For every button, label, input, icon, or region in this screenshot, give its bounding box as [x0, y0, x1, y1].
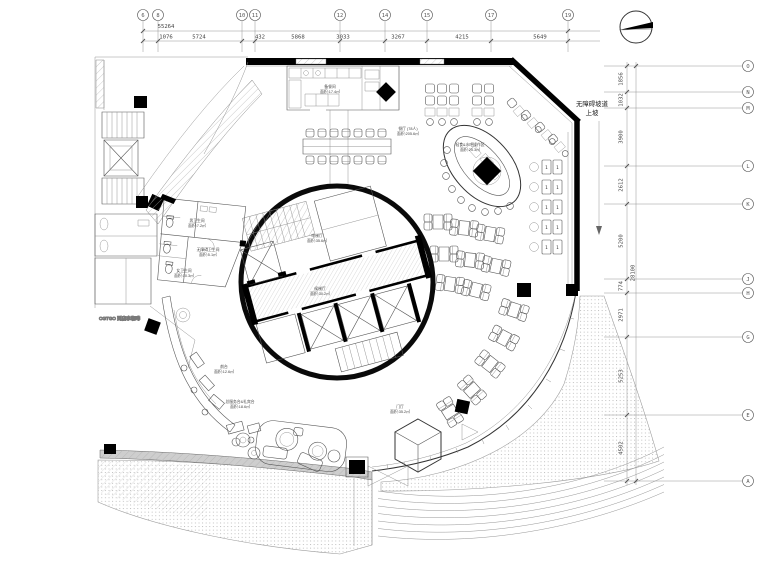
room-area: 面积:35.6㎡	[307, 238, 327, 243]
door-opening	[310, 108, 326, 112]
seat-number: 1	[545, 225, 548, 231]
dim-value: 2612	[619, 178, 625, 191]
grid-bubble: 17	[488, 13, 495, 19]
dim-value: 5200	[619, 234, 625, 247]
room-area: 面积:205.6㎡	[397, 131, 419, 136]
dim-total-right: 28100	[631, 265, 637, 282]
dim-value: 1032	[619, 93, 625, 106]
seat-number: 1	[545, 245, 548, 251]
room-area: 面积:10.3㎡	[174, 273, 194, 278]
room-label: 门厅	[396, 404, 404, 409]
dim-value: 5724	[192, 35, 206, 41]
dim-value: 5253	[619, 369, 625, 382]
room-area: 面积:35.2㎡	[390, 409, 410, 414]
room-area: 面积:5.1㎡	[199, 252, 217, 257]
column	[134, 96, 147, 108]
dim-value: 774	[619, 280, 625, 291]
room-label: 女卫生间	[176, 268, 191, 273]
grid-bubble: L	[746, 164, 749, 170]
room-label: 前台	[220, 364, 228, 369]
room-area: 面积:7.2㎡	[188, 223, 206, 228]
grid-bubble: J	[746, 277, 749, 283]
seat-number: 1	[556, 185, 559, 191]
column	[349, 460, 365, 474]
room-label: 总服务台&礼宾台	[225, 399, 254, 404]
column	[517, 283, 531, 297]
dim-value: 2971	[619, 308, 625, 321]
grid-bubble: H	[746, 291, 749, 297]
floor-plan-drawing: CGTGO 到店拿咖啡	[0, 0, 760, 570]
grid-bubble: 14	[382, 13, 389, 19]
dim-value: 5868	[291, 35, 305, 41]
dim-value: 5649	[533, 35, 546, 41]
dim-value: 4215	[455, 35, 468, 41]
seat-number: 1	[556, 225, 559, 231]
dim-value: 3267	[391, 35, 404, 41]
grid-bubble: 15	[424, 13, 431, 19]
column	[455, 399, 470, 414]
room-area: 面积:12.6㎡	[214, 369, 234, 374]
dim-value: 1856	[619, 72, 625, 85]
grid-bubble: 19	[565, 13, 572, 19]
ramp-note-line2: 上坡	[586, 108, 599, 117]
room-area: 面积:30.2㎡	[310, 291, 330, 296]
grid-bubble: E	[746, 413, 749, 419]
room-label: 无障碍卫生间	[197, 247, 220, 252]
grid-bubble: G	[746, 335, 749, 341]
dim-value: 3033	[336, 35, 349, 41]
grid-bubble: 11	[252, 13, 259, 19]
dim-total-top: 55264	[158, 24, 175, 30]
seat-number: 1	[556, 205, 559, 211]
grid-bubble: 6	[141, 13, 144, 19]
seat-number: 1	[545, 205, 548, 211]
column	[136, 196, 148, 208]
top-wall	[246, 58, 514, 65]
room-label: 男卫生间	[189, 218, 204, 223]
room-label: 轻食&水吧操作区	[455, 142, 484, 147]
room-area: 面积:18.6㎡	[230, 404, 250, 409]
floor-plan-page: CGTGO 到店拿咖啡	[0, 0, 760, 570]
dim-value: 3900	[619, 130, 625, 143]
column	[566, 284, 578, 296]
dim-value: 432	[255, 35, 265, 41]
room-area: 面积:17.4㎡	[320, 89, 340, 94]
dim-value: 1076	[159, 35, 172, 41]
grid-bubble: 12	[337, 13, 344, 19]
grid-bubble: O	[746, 64, 749, 70]
room-label: 备餐间	[324, 84, 336, 89]
room-area: 面积:25.3㎡	[460, 147, 480, 152]
grid-bubble: 10	[239, 13, 246, 19]
grid-bubble: N	[746, 90, 749, 96]
seat-number: 1	[556, 165, 559, 171]
room-label: 候梯厅	[314, 286, 326, 291]
dim-value: 4502	[619, 441, 625, 454]
seat-number: 1	[545, 165, 548, 171]
column	[104, 444, 116, 454]
ramp-note-line1: 无障碍坡道	[576, 99, 609, 108]
room-label: 电梯厅	[311, 233, 323, 238]
togo-counter-label: CGTGO 到店拿咖啡	[99, 315, 140, 322]
grid-bubble: 8	[156, 13, 159, 19]
seat-number: 1	[545, 185, 548, 191]
room-label: 餐厅 (78人)	[398, 126, 418, 131]
seat-number: 1	[556, 245, 559, 251]
